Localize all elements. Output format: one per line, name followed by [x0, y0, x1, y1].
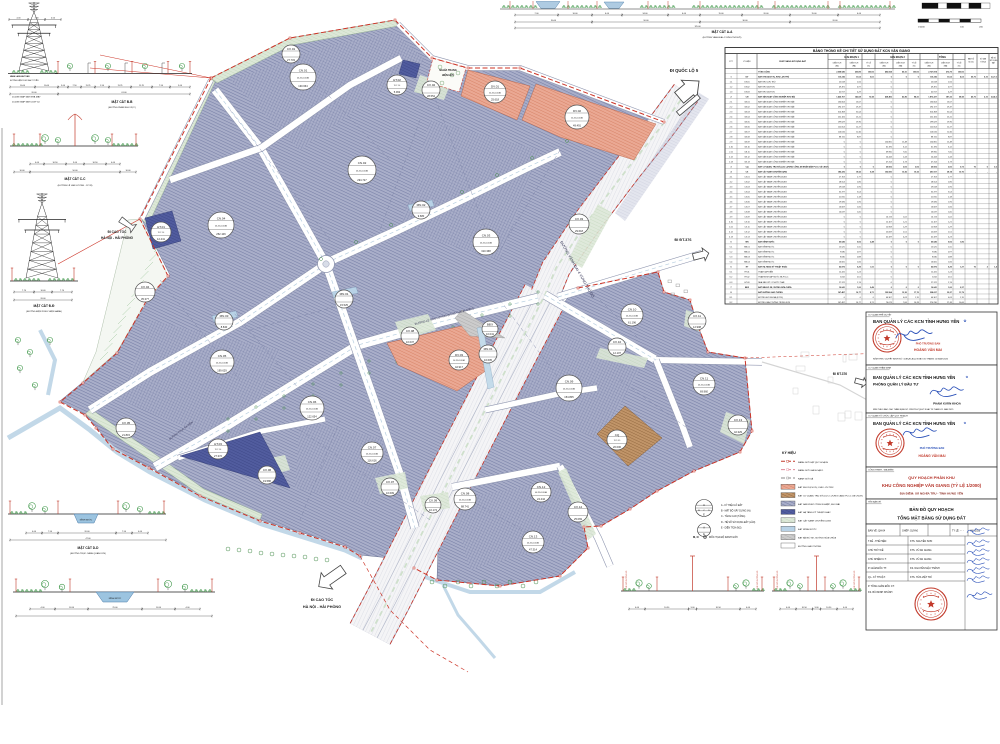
svg-text:2-10: 2-10 — [984, 96, 988, 98]
svg-text:C - TẦNG CAO (TẦNG): C - TẦNG CAO (TẦNG) — [721, 515, 745, 518]
svg-text:46.307: 46.307 — [931, 297, 937, 299]
svg-text:MẶT CẮT A-A: MẶT CẮT A-A — [712, 29, 733, 34]
svg-text:0: 0 — [891, 197, 892, 199]
svg-text:8,87: 8,87 — [948, 136, 952, 138]
svg-text:0: 0 — [891, 91, 892, 93]
svg-text:CX.09: CX.09 — [429, 499, 438, 503]
svg-text:272,79: 272,79 — [946, 71, 952, 73]
svg-text:0: 0 — [918, 242, 919, 244]
svg-text:5: 5 — [730, 242, 731, 244]
svg-text:0: 0 — [844, 227, 845, 229]
svg-text:ĐẤT CÂY XANH CHUYÊN DỤNG: ĐẤT CÂY XANH CHUYÊN DỤNG — [758, 216, 787, 219]
svg-text:10.50: 10.50 — [92, 162, 98, 164]
svg-text:ĐẤT CÂY XANH CHUYÊN DỤNG: ĐẤT CÂY XANH CHUYÊN DỤNG — [758, 231, 787, 234]
svg-text:1.426.767: 1.426.767 — [836, 95, 844, 98]
svg-text:125.00: 125.00 — [694, 26, 701, 28]
svg-text:16,77: 16,77 — [856, 302, 861, 304]
svg-text:0: 0 — [860, 152, 861, 154]
svg-text:P. GIÁM ĐỐC TT:: P. GIÁM ĐỐC TT: — [868, 567, 887, 570]
svg-text:6,29: 6,29 — [948, 267, 952, 269]
svg-text:16,28: 16,28 — [914, 302, 919, 304]
svg-text:252.106: 252.106 — [930, 116, 937, 118]
svg-text:ĐẤT CÂY XANH CHUYÊN DỤNG: ĐẤT CÂY XANH CHUYÊN DỤNG — [758, 226, 787, 229]
svg-text:122.994: 122.994 — [885, 291, 893, 294]
svg-text:1,66: 1,66 — [857, 262, 861, 264]
svg-text:0: 0 — [891, 86, 892, 88]
svg-text:HT.03: HT.03 — [745, 282, 750, 284]
svg-text:MẶT CẮT C-C: MẶT CẮT C-C — [65, 176, 87, 181]
svg-text:4,23: 4,23 — [903, 237, 907, 239]
svg-text:ĐẤT SẢN XUẤT CÔNG NGHIỆP, KHO: ĐẤT SẢN XUẤT CÔNG NGHIỆP, KHO BÃI — [758, 95, 795, 98]
svg-text:1,66: 1,66 — [857, 207, 861, 209]
svg-text:5,61: 5,61 — [870, 76, 874, 78]
svg-text:HIỆN HỮU: HIỆN HỮU — [442, 74, 455, 77]
svg-text:7: 7 — [730, 287, 731, 289]
svg-text:4.1: 4.1 — [730, 177, 733, 179]
svg-text:0: 0 — [906, 242, 907, 244]
svg-text:ĐẤT KHU DỊCH VỤ, KHU LƯU TRÚ: ĐẤT KHU DỊCH VỤ, KHU LƯU TRÚ — [758, 75, 790, 78]
svg-text:DV.03: DV.03 — [744, 91, 749, 93]
svg-text:0: 0 — [918, 287, 919, 289]
svg-text:24.444: 24.444 — [886, 157, 892, 159]
svg-text:KÈM THEO QUYẾT ĐỊNH SỐ: 108/QĐ: KÈM THEO QUYẾT ĐỊNH SỐ: 108/QĐ-BQL NGÀY … — [873, 358, 949, 361]
svg-text:(HA): (HA) — [944, 65, 948, 68]
svg-text:DIỆN TÍCH: DIỆN TÍCH — [925, 62, 934, 65]
svg-text:199.629: 199.629 — [930, 121, 937, 123]
svg-text:2.1: 2.1 — [730, 101, 733, 103]
svg-text:4.9: 4.9 — [730, 217, 733, 219]
svg-text:ĐI ĐT.376: ĐI ĐT.376 — [675, 238, 692, 242]
svg-text:2,00: 2,00 — [903, 167, 907, 169]
svg-text:0,97: 0,97 — [948, 252, 952, 254]
svg-text:294.727: 294.727 — [357, 178, 367, 182]
svg-text:GHÉP: 01/XA0: GHÉP: 01/XA0 — [902, 530, 919, 533]
svg-text:CHỨC NĂNG SỬ DỤNG ĐẤT: CHỨC NĂNG SỬ DỤNG ĐẤT — [779, 60, 807, 63]
svg-text:ĐẤT KHU DỊCH VỤ: ĐẤT KHU DỊCH VỤ — [758, 90, 775, 93]
svg-text:0: 0 — [844, 147, 845, 149]
svg-text:0,51: 0,51 — [857, 277, 861, 279]
svg-text:2: 2 — [987, 267, 988, 269]
svg-text:3,5: 3,5 — [994, 167, 997, 169]
svg-text:ĐẤT CÂY XANH CHUYÊN DỤNG: ĐẤT CÂY XANH CHUYÊN DỤNG — [758, 176, 787, 179]
svg-text:6.3: 6.3 — [730, 282, 733, 284]
svg-text:HÀ NỘI - HẢI PHÒNG: HÀ NỘI - HẢI PHÒNG — [101, 235, 134, 240]
svg-text:1,55: 1,55 — [857, 247, 861, 249]
svg-text:HT.01: HT.01 — [745, 272, 750, 274]
svg-text:ĐƯỜNG GIAO THÔNG: ĐƯỜNG GIAO THÔNG — [798, 545, 821, 548]
svg-text:2.008.940: 2.008.940 — [836, 70, 844, 73]
svg-text:47.314: 47.314 — [529, 548, 537, 552]
svg-text:ĐẤT KÊNH NƯỚC: ĐẤT KÊNH NƯỚC — [758, 241, 775, 244]
svg-text:16,77: 16,77 — [856, 292, 861, 294]
svg-text:2,86: 2,86 — [948, 182, 952, 184]
svg-text:1.873.227: 1.873.227 — [928, 96, 936, 98]
svg-text:8.2: 8.2 — [730, 302, 733, 304]
svg-text:27.703: 27.703 — [839, 177, 845, 179]
svg-text:ĐẤT SẢN XUẤT CÔNG NGHIỆP, KHO: ĐẤT SẢN XUẤT CÔNG NGHIỆP, KHO BÃI — [758, 110, 795, 113]
svg-text:CƠ QUAN TỔ CHỨC LẬP QUY HOẠCH: CƠ QUAN TỔ CHỨC LẬP QUY HOẠCH — [868, 415, 908, 418]
svg-text:49.491: 49.491 — [931, 86, 937, 88]
svg-text:0: 0 — [891, 126, 892, 128]
svg-text:ĐẤT SẢN XUẤT CÔNG NGHIỆP, KHO: ĐẤT SẢN XUẤT CÔNG NGHIỆP, KHO BÃI — [758, 146, 795, 149]
svg-text:8: 8 — [730, 292, 731, 294]
svg-text:2,8-4,0: 2,8-4,0 — [991, 95, 997, 98]
svg-text:27.372: 27.372 — [931, 282, 937, 284]
svg-text:CN.03: CN.03 — [482, 234, 491, 238]
svg-text:47.314: 47.314 — [886, 162, 892, 164]
svg-text:PHÒNG QUẢN LÝ ĐẦU TƯ: PHÒNG QUẢN LÝ ĐẦU TƯ — [873, 382, 918, 387]
svg-text:12.441: 12.441 — [931, 272, 937, 274]
svg-text:MN.02: MN.02 — [417, 203, 426, 207]
svg-text:15,48: 15,48 — [947, 142, 952, 144]
svg-text:20.006: 20.006 — [613, 445, 621, 449]
svg-text:84,01: 84,01 — [914, 95, 919, 98]
svg-text:E - DIỆN TÍCH (M2): E - DIỆN TÍCH (M2) — [721, 526, 742, 529]
svg-text:1.3: 1.3 — [730, 91, 733, 93]
svg-text:116.616: 116.616 — [367, 459, 377, 463]
svg-text:CN.01: CN.01 — [744, 101, 749, 103]
svg-text:CHỈ GIỚI ĐƯỜNG ĐỎ: CHỈ GIỚI ĐƯỜNG ĐỎ — [625, 570, 628, 589]
svg-text:2,56: 2,56 — [948, 81, 952, 83]
svg-text:(ĐƯỜNG LÊ VĂN LƯƠNG - 97.33): (ĐƯỜNG LÊ VĂN LƯƠNG - 97.33) — [58, 184, 93, 187]
svg-text:ĐẤT HẠ TẦNG KỸ THUẬT KHÁC: ĐẤT HẠ TẦNG KỸ THUẬT KHÁC — [798, 511, 831, 514]
svg-text:5,06: 5,06 — [857, 242, 861, 244]
svg-text:4.4: 4.4 — [730, 192, 733, 194]
svg-text:P. TỔNG GIÁM ĐỐC CT:: P. TỔNG GIÁM ĐỐC CT: — [868, 585, 895, 588]
svg-text:15.00: 15.00 — [811, 13, 817, 15]
svg-text:(%): (%) — [958, 66, 961, 68]
svg-text:72,69: 72,69 — [869, 96, 874, 98]
svg-text:5.062: 5.062 — [932, 277, 937, 279]
svg-text:4.11: 4.11 — [729, 227, 733, 229]
svg-text:21.815: 21.815 — [931, 197, 937, 199]
svg-text:0: 0 — [891, 242, 892, 244]
svg-text:50-155-102/A5: 50-155-102/A5 — [489, 91, 501, 94]
svg-text:DIỆN TÍCH: DIỆN TÍCH — [850, 62, 859, 65]
svg-text:2.7: 2.7 — [730, 131, 733, 133]
svg-text:1,55: 1,55 — [948, 247, 952, 249]
svg-text:12.441: 12.441 — [157, 237, 165, 241]
svg-text:ĐẤT CÂY XANH CHUYÊN DỤNG: ĐẤT CÂY XANH CHUYÊN DỤNG — [758, 201, 787, 204]
svg-text:PHẠM XUÂN KHOA: PHẠM XUÂN KHOA — [933, 401, 962, 406]
svg-text:2,44: 2,44 — [948, 157, 952, 159]
svg-text:0: 0 — [891, 257, 892, 259]
svg-text:2,96: 2,96 — [857, 187, 861, 189]
svg-text:MỐC TỌA ĐỘ RANH GIỚI: MỐC TỌA ĐỘ RANH GIỚI — [709, 536, 738, 539]
svg-text:70: 70 — [974, 167, 976, 169]
svg-text:31,04: 31,04 — [947, 111, 952, 113]
svg-text:438.456: 438.456 — [885, 95, 892, 98]
svg-text:(%): (%) — [867, 66, 870, 68]
svg-text:0: 0 — [860, 227, 861, 229]
svg-text:4,73: 4,73 — [948, 162, 952, 164]
svg-text:46-155-102/A6: 46-155-102/A6 — [215, 225, 227, 228]
svg-text:16.00: 16.00 — [572, 13, 578, 15]
svg-text:3,11: 3,11 — [870, 267, 874, 269]
svg-text:27.372: 27.372 — [214, 454, 222, 458]
svg-text:10.50: 10.50 — [69, 607, 75, 609]
svg-text:0: 0 — [860, 297, 861, 299]
svg-text:KÊNH NƯỚC: KÊNH NƯỚC — [80, 519, 93, 522]
svg-text:BẢN ĐỒ QUY HOẠCH: BẢN ĐỒ QUY HOẠCH — [909, 507, 953, 512]
svg-text:11,02: 11,02 — [947, 76, 952, 78]
svg-text:29,47: 29,47 — [947, 106, 952, 108]
svg-text:0: 0 — [891, 277, 892, 279]
svg-text:Q.L. KỸ THUẬT:: Q.L. KỸ THUẬT: — [868, 576, 886, 579]
svg-text:ĐẤT HẠ TẦNG KỸ THUẬT KHÁC: ĐẤT HẠ TẦNG KỸ THUẬT KHÁC — [758, 266, 788, 269]
svg-text:1.2: 1.2 — [730, 86, 733, 88]
svg-text:46-155-102/A6: 46-155-102/A6 — [356, 170, 368, 173]
svg-text:20.00M GIÁP ĐẤT NHÀ MÁY: 20.00M GIÁP ĐẤT NHÀ MÁY — [12, 96, 41, 99]
svg-text:CN.12: CN.12 — [744, 157, 749, 159]
svg-text:ĐẤT CÂY XANH CHUYÊN DỤNG: ĐẤT CÂY XANH CHUYÊN DỤNG — [798, 520, 831, 523]
svg-text:ĐẤT CƠ QUAN, TRỤ SỞ (LỰC LƯỢNG: ĐẤT CƠ QUAN, TRỤ SỞ (LỰC LƯỢNG CÔNG AN N… — [758, 166, 829, 169]
svg-text:0: 0 — [860, 232, 861, 234]
svg-text:CÔNG TRÌNH - ĐỊA ĐIỂM: CÔNG TRÌNH - ĐỊA ĐIỂM — [868, 469, 894, 472]
svg-text:CN.08: CN.08 — [744, 136, 749, 138]
svg-text:CN.02: CN.02 — [744, 106, 749, 108]
svg-text:69.960: 69.960 — [931, 152, 937, 154]
svg-text:30.00: 30.00 — [742, 20, 748, 22]
svg-text:42.917: 42.917 — [839, 91, 845, 93]
svg-text:4.6: 4.6 — [730, 202, 733, 204]
svg-text:200,89: 200,89 — [855, 71, 861, 73]
svg-text:CN.07: CN.07 — [368, 445, 377, 449]
svg-text:5.3: 5.3 — [730, 257, 733, 259]
svg-text:4.12: 4.12 — [729, 232, 733, 234]
svg-text:4,63: 4,63 — [948, 297, 952, 299]
svg-text:20.006: 20.006 — [886, 167, 892, 169]
svg-text:CN.13: CN.13 — [744, 162, 749, 164]
svg-text:167.487: 167.487 — [838, 291, 845, 294]
svg-text:88.741: 88.741 — [839, 136, 845, 138]
svg-text:187,32: 187,32 — [946, 96, 952, 98]
svg-text:50.00: 50.00 — [72, 170, 78, 172]
svg-text:2.8: 2.8 — [730, 136, 733, 138]
svg-text:1,66: 1,66 — [948, 262, 952, 264]
svg-text:5.2: 5.2 — [730, 252, 733, 254]
svg-text:ĐẤT KHU LƯU TRÚ: ĐẤT KHU LƯU TRÚ — [758, 80, 776, 83]
svg-text:35.377: 35.377 — [141, 297, 149, 301]
svg-text:CHỦ TRÌ T.KẾ:: CHỦ TRÌ T.KẾ: — [868, 549, 884, 552]
svg-text:42.917: 42.917 — [931, 91, 937, 93]
svg-text:0: 0 — [844, 297, 845, 299]
svg-text:46-155-102/A6: 46-155-102/A6 — [698, 383, 710, 386]
svg-text:KTS. VŨ AN GIANG: KTS. VŨ AN GIANG — [910, 558, 932, 561]
svg-text:492.834: 492.834 — [885, 70, 893, 73]
svg-text:2,74: 2,74 — [948, 282, 952, 284]
svg-text:QUY HOẠCH PHÂN KHU: QUY HOẠCH PHÂN KHU — [908, 475, 955, 480]
svg-text:ĐẤT BÃI ĐỖ XE, XƯỞNG SỬA CHỮA: ĐẤT BÃI ĐỖ XE, XƯỞNG SỬA CHỮA — [798, 536, 836, 539]
svg-text:50-155-102/A5: 50-155-102/A5 — [453, 359, 465, 362]
svg-text:310.368: 310.368 — [930, 111, 937, 113]
svg-text:1,27: 1,27 — [960, 267, 964, 269]
svg-text:50.645: 50.645 — [839, 241, 845, 244]
svg-text:ĐẤT KÊNH NƯỚC: ĐẤT KÊNH NƯỚC — [798, 528, 817, 531]
svg-text:25.618: 25.618 — [491, 98, 499, 102]
svg-text:NHÀ MÁY XỬ LÝ NƯỚC THẢI: NHÀ MÁY XỬ LÝ NƯỚC THẢI — [758, 281, 785, 284]
svg-text:CN.09: CN.09 — [565, 380, 574, 384]
svg-text:29,47: 29,47 — [856, 106, 861, 108]
svg-text:TỔNG MẶT BẰNG SỬ DỤNG ĐẤT: TỔNG MẶT BẰNG SỬ DỤNG ĐẤT — [897, 516, 966, 521]
svg-text:0: 0 — [891, 282, 892, 284]
svg-text:110.226: 110.226 — [838, 76, 845, 78]
svg-text:CX.04: CX.04 — [744, 192, 749, 194]
svg-text:27.703: 27.703 — [287, 58, 295, 62]
svg-text:0: 0 — [891, 192, 892, 194]
svg-text:12.908: 12.908 — [693, 325, 701, 329]
svg-text:CX.13: CX.13 — [744, 237, 749, 239]
svg-text:2,18: 2,18 — [857, 197, 861, 199]
svg-text:CX.05: CX.05 — [744, 197, 749, 199]
svg-text:ĐẤT SẢN XUẤT CÔNG NGHIỆP, KHO: ĐẤT SẢN XUẤT CÔNG NGHIỆP, KHO BÃI — [758, 100, 795, 103]
svg-text:49.491: 49.491 — [839, 86, 845, 88]
svg-text:0: 0 — [891, 131, 892, 133]
svg-text:1,70: 1,70 — [960, 297, 964, 299]
svg-text:10,70: 10,70 — [959, 172, 964, 174]
svg-text:274.230: 274.230 — [930, 302, 937, 304]
svg-text:15.525: 15.525 — [839, 247, 845, 249]
svg-text:E: E — [703, 513, 705, 517]
svg-text:16.609: 16.609 — [931, 207, 937, 209]
svg-text:42.329: 42.329 — [734, 430, 742, 434]
svg-text:BẢNG THỐNG KÊ CHI TIẾT SỬ DỤNG: BẢNG THỐNG KÊ CHI TIẾT SỬ DỤNG ĐẤT KCN V… — [813, 48, 911, 53]
svg-text:0: 0 — [891, 101, 892, 103]
svg-text:CN.08: CN.08 — [461, 491, 470, 495]
svg-text:0: 0 — [918, 267, 919, 269]
svg-text:CN.02: CN.02 — [358, 161, 367, 165]
svg-text:70 2 1.4: 70 2 1.4 — [394, 85, 401, 87]
svg-text:✿: ✿ — [966, 375, 969, 379]
svg-text:KHU CÔNG NGHIỆP VĂN GIANG (TỶ: KHU CÔNG NGHIỆP VĂN GIANG (TỶ LỆ 1/2000) — [882, 483, 982, 488]
svg-text:20.00: 20.00 — [84, 531, 90, 533]
svg-text:28.554: 28.554 — [931, 182, 937, 184]
svg-text:19.586: 19.586 — [931, 202, 937, 204]
svg-text:12.908: 12.908 — [931, 227, 937, 229]
svg-text:DV.01: DV.01 — [744, 81, 749, 83]
svg-text:KÝ HIỆU: KÝ HIỆU — [743, 60, 751, 63]
svg-text:47.314: 47.314 — [931, 162, 937, 164]
svg-text:ĐẤT SẢN XUẤT CÔNG NGHIỆP, KHO: ĐẤT SẢN XUẤT CÔNG NGHIỆP, KHO BÃI — [758, 130, 795, 133]
svg-text:A: A — [703, 503, 705, 507]
svg-text:122.654: 122.654 — [930, 126, 937, 128]
svg-text:0: 0 — [860, 157, 861, 159]
svg-text:16.605: 16.605 — [484, 358, 492, 362]
svg-text:CN.13: CN.13 — [529, 534, 538, 538]
svg-text:15.525: 15.525 — [340, 303, 348, 307]
svg-text:27.703: 27.703 — [931, 177, 937, 179]
svg-text:25.069: 25.069 — [574, 517, 582, 521]
svg-text:CƠ QUAN THẨM ĐỊNH: CƠ QUAN THẨM ĐỊNH — [868, 367, 892, 370]
svg-text:5,06: 5,06 — [948, 242, 952, 244]
svg-text:8,71: 8,71 — [870, 302, 874, 304]
svg-text:4.2: 4.2 — [730, 182, 733, 184]
svg-text:4,63: 4,63 — [903, 297, 907, 299]
svg-text:25.069: 25.069 — [886, 232, 892, 234]
svg-text:ĐẤT KHU DỊCH VỤ, KHU LƯU TRÚ: ĐẤT KHU DỊCH VỤ, KHU LƯU TRÚ — [798, 486, 834, 489]
svg-text:0: 0 — [891, 182, 892, 184]
svg-text:ĐẤT CÂY XANH CHUYÊN DỤNG: ĐẤT CÂY XANH CHUYÊN DỤNG — [758, 211, 787, 214]
svg-text:100,00: 100,00 — [913, 71, 919, 73]
svg-text:0: 0 — [891, 212, 892, 214]
svg-text:2,44: 2,44 — [903, 157, 907, 159]
svg-text:35.377: 35.377 — [931, 192, 937, 194]
svg-text:DIỆN TÍCH: DIỆN TÍCH — [880, 62, 889, 65]
svg-text:19.586: 19.586 — [263, 479, 271, 483]
svg-text:46-155-102/A6: 46-155-102/A6 — [366, 452, 378, 455]
svg-text:1,96: 1,96 — [857, 202, 861, 204]
svg-text:1/2000: 1/2000 — [918, 27, 925, 29]
svg-text:0: 0 — [844, 162, 845, 164]
svg-text:CX.01: CX.01 — [287, 47, 296, 51]
svg-text:0: 0 — [844, 157, 845, 159]
svg-text:10.037: 10.037 — [931, 212, 937, 214]
svg-text:42.329: 42.329 — [931, 237, 937, 239]
svg-text:CƠ QUAN PHÊ DUYỆT: CƠ QUAN PHÊ DUYỆT — [868, 314, 892, 317]
svg-text:130.664: 130.664 — [838, 101, 845, 103]
svg-text:25,21: 25,21 — [947, 116, 952, 118]
svg-text:1,29: 1,29 — [948, 227, 952, 229]
svg-text:12,30: 12,30 — [902, 292, 907, 294]
svg-text:0,51: 0,51 — [948, 277, 952, 279]
svg-text:1,24: 1,24 — [857, 272, 861, 274]
svg-text:2,18: 2,18 — [948, 197, 952, 199]
svg-text:167.487: 167.487 — [838, 302, 845, 304]
svg-text:10.50: 10.50 — [802, 607, 808, 609]
svg-text:90.00: 90.00 — [643, 20, 649, 22]
svg-text:GIAI ĐOẠN 1: GIAI ĐOẠN 1 — [844, 56, 859, 59]
svg-text:CN.10: CN.10 — [628, 307, 637, 311]
svg-text:ĐẤT CÂY XANH CHUYÊN DỤNG: ĐẤT CÂY XANH CHUYÊN DỤNG — [758, 196, 787, 199]
svg-text:2.13: 2.13 — [729, 162, 733, 164]
svg-text:12.107: 12.107 — [931, 222, 937, 224]
svg-text:CX.01: CX.01 — [744, 177, 749, 179]
svg-text:ĐẤT CÂY XANH CHUYÊN DỤNG: ĐẤT CÂY XANH CHUYÊN DỤNG — [758, 186, 787, 189]
svg-text:25.069: 25.069 — [931, 232, 937, 234]
svg-text:0,49: 0,49 — [870, 286, 874, 289]
svg-text:0,97: 0,97 — [857, 252, 861, 254]
svg-text:11,79: 11,79 — [959, 292, 964, 294]
svg-text:20.00: 20.00 — [31, 92, 37, 94]
svg-text:50-155-102/A5: 50-155-102/A5 — [571, 116, 583, 119]
svg-text:MN.03: MN.03 — [220, 314, 229, 318]
svg-text:(ĐƯỜNG VÀNH ĐAI 4 VÙNG THỦ ĐÔ): (ĐƯỜNG VÀNH ĐAI 4 VÙNG THỦ ĐÔ) — [703, 36, 742, 39]
svg-text:TỶ LỆ: - - -: TỶ LỆ: - - - — [952, 530, 964, 533]
svg-text:0: 0 — [860, 237, 861, 239]
svg-text:19.586: 19.586 — [839, 202, 845, 204]
svg-text:CX.12: CX.12 — [574, 505, 583, 509]
svg-text:MN.03: MN.03 — [744, 257, 750, 259]
svg-text:4,03: 4,03 — [960, 75, 964, 78]
svg-text:0: 0 — [891, 272, 892, 274]
svg-text:294.727: 294.727 — [838, 106, 845, 108]
svg-text:110.226: 110.226 — [930, 76, 937, 78]
svg-text:11,66: 11,66 — [856, 131, 861, 133]
svg-text:0: 0 — [891, 177, 892, 179]
svg-text:0: 0 — [906, 76, 907, 78]
svg-text:CN.04: CN.04 — [744, 116, 749, 118]
svg-text:10.174: 10.174 — [931, 217, 937, 219]
svg-text:4,29: 4,29 — [948, 91, 952, 93]
svg-text:35.377: 35.377 — [839, 192, 845, 194]
svg-text:116.616: 116.616 — [838, 131, 845, 133]
svg-text:0: 0 — [860, 142, 861, 144]
svg-text:0: 0 — [906, 267, 907, 269]
svg-text:10.00: 10.00 — [20, 85, 26, 87]
svg-text:6,12: 6,12 — [903, 147, 907, 149]
svg-text:10.174: 10.174 — [886, 217, 892, 219]
svg-text:46-155-102/A6: 46-155-102/A6 — [459, 498, 471, 501]
